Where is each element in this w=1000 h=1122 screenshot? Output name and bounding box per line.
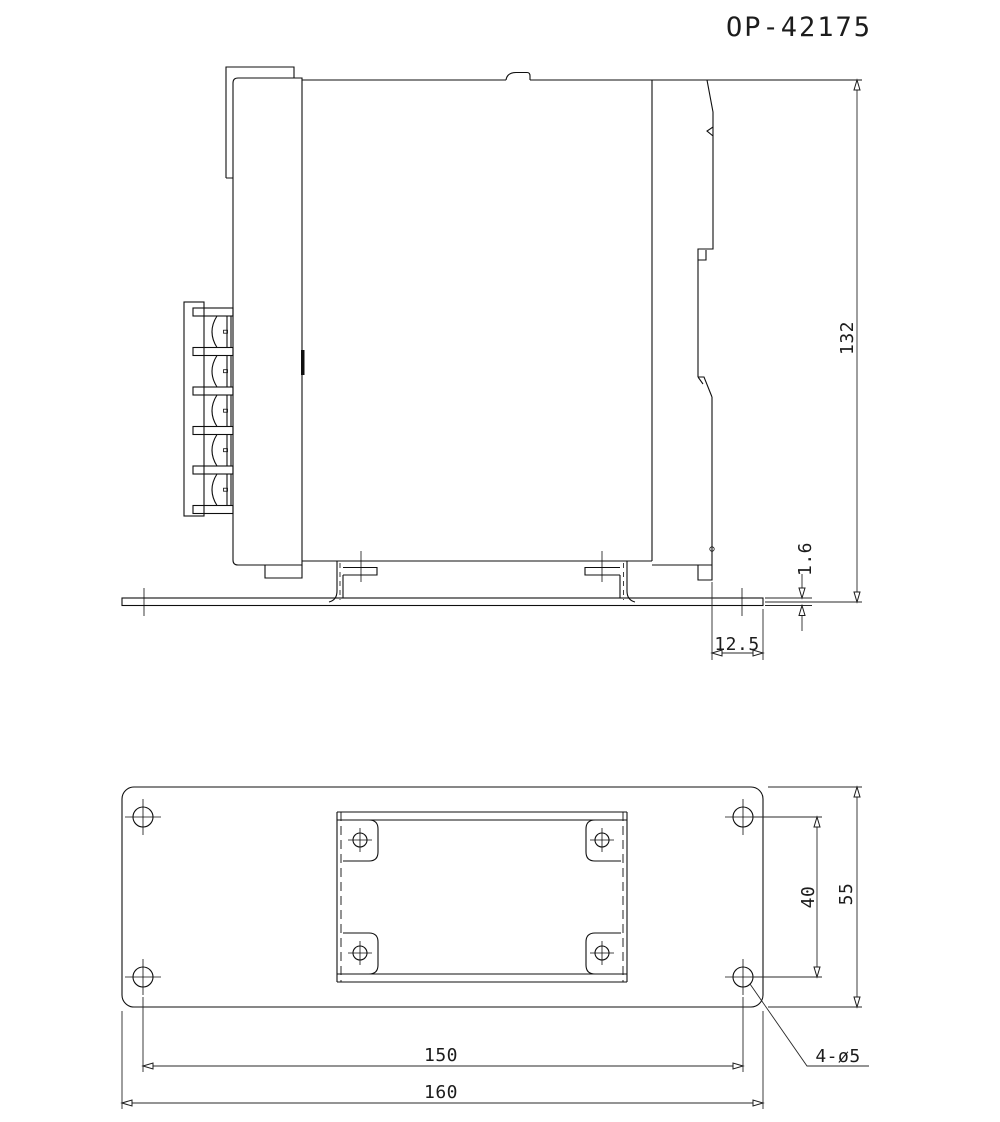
dim-hole-pitch-x-label: 150 <box>424 1045 458 1066</box>
panel-slot-tick <box>301 350 305 375</box>
foot-hole-top-right <box>590 828 614 852</box>
dim-plate-thickness-label: 1.6 <box>795 542 816 576</box>
drawing-number: OP-42175 <box>726 12 872 43</box>
dim-plate-thickness: 1.6 <box>765 542 816 631</box>
device-footprint <box>337 812 627 982</box>
drawing-page: OP-42175 <box>0 0 1000 1122</box>
terminal-block <box>184 302 233 516</box>
foot-tab-bottom-left <box>343 933 378 974</box>
foot-tab-top-right <box>586 820 621 861</box>
left-foot <box>329 551 377 602</box>
right-foot <box>585 551 635 602</box>
dim-plate-depth-label: 55 <box>836 883 857 906</box>
plate-hole-centerlines <box>144 588 742 616</box>
flange-outline <box>226 67 294 178</box>
dim-rail-offset: 12.5 <box>712 582 763 660</box>
dim-rail-offset-label: 12.5 <box>714 634 759 655</box>
foot-hole-top-left <box>348 828 372 852</box>
hole-callout: 4-ø5 <box>750 984 869 1067</box>
dim-height: 132 <box>765 80 862 602</box>
foot-tab-bottom-right <box>586 933 621 974</box>
technical-drawing: OP-42175 <box>0 0 1000 1122</box>
hole-callout-label: 4-ø5 <box>815 1046 860 1067</box>
panel-foot <box>265 565 302 578</box>
foot-hole-bottom-right <box>590 941 614 965</box>
din-rail-profile <box>652 80 714 580</box>
foot-tab-top-left <box>343 820 378 861</box>
dim-height-label: 132 <box>837 321 858 355</box>
top-bump <box>506 73 530 81</box>
body-outline <box>302 73 862 562</box>
footprint-hidden-edges <box>341 812 623 982</box>
base-plate-side <box>122 588 763 616</box>
terminal-cover <box>184 302 204 516</box>
dim-plate-width-label: 160 <box>424 1082 458 1103</box>
dim-hole-pitch-y-label: 40 <box>798 886 819 909</box>
corner-hole-bottom-left <box>125 959 161 995</box>
terminal-screws <box>212 316 231 506</box>
side-view: 132 1.6 12.5 <box>122 67 862 660</box>
plan-view: 40 55 150 160 4-ø5 <box>122 787 869 1109</box>
front-panel-outline <box>233 78 302 565</box>
foot-hole-bottom-left <box>348 941 372 965</box>
corner-hole-top-left <box>125 799 161 835</box>
dim-hole-pitch-x: 150 <box>143 997 743 1072</box>
